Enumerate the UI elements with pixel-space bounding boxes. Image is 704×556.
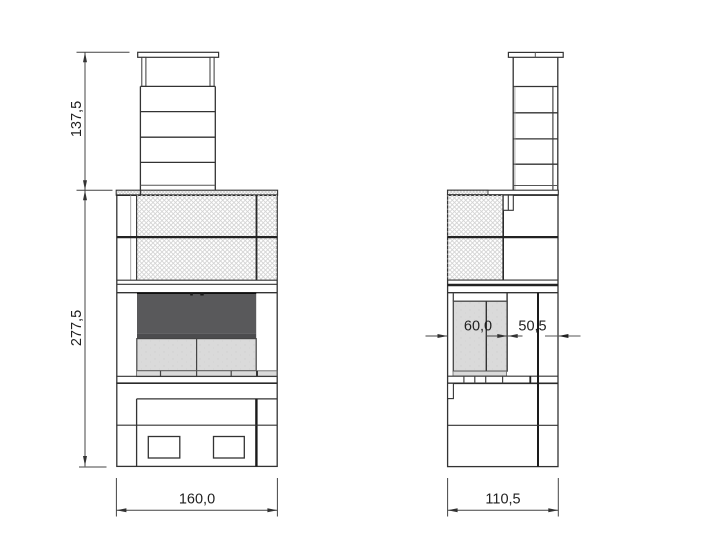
svg-text:277,5: 277,5 xyxy=(69,310,85,346)
svg-text:60,0: 60,0 xyxy=(464,318,492,334)
svg-text:50,5: 50,5 xyxy=(518,318,546,334)
svg-text:137,5: 137,5 xyxy=(69,101,85,137)
svg-text:110,5: 110,5 xyxy=(485,491,520,507)
svg-text:160,0: 160,0 xyxy=(179,491,215,507)
